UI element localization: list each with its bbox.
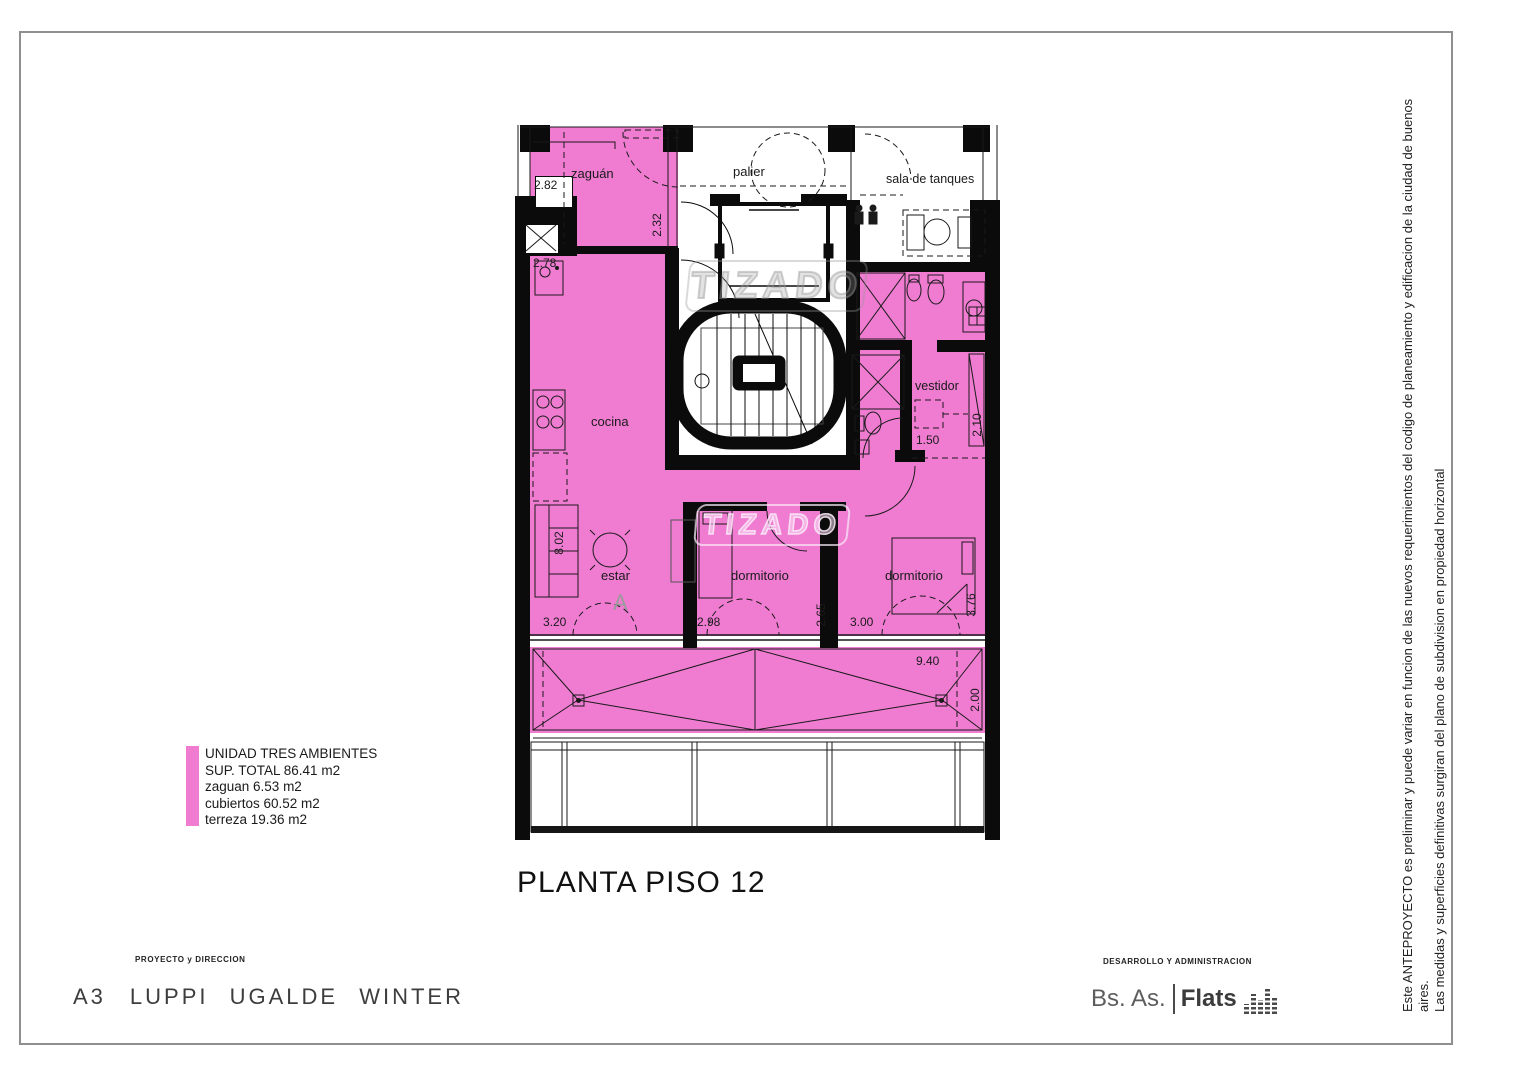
dim-label: 2.65 — [814, 600, 828, 630]
architects-prefix: A3 — [73, 984, 106, 1009]
section-marker: A — [613, 590, 628, 616]
room-label-zaguan: zaguán — [571, 166, 614, 181]
development-admin-heading: DESARROLLO Y ADMINISTRACION — [1103, 957, 1252, 966]
railing — [531, 742, 984, 833]
legend-line: cubiertos 60.52 m2 — [205, 796, 377, 813]
legend-line: terreza 19.36 m2 — [205, 812, 377, 829]
dim-label: 1.50 — [916, 433, 939, 447]
equalizer-bars-icon — [1244, 984, 1277, 1014]
cabinet — [671, 520, 695, 582]
watermark: TIZADO — [693, 504, 851, 546]
round-table — [593, 533, 627, 567]
dim-label: 3.20 — [543, 615, 566, 629]
brand-flats: Flats — [1181, 984, 1237, 1014]
disclaimer-line-1: Este ANTEPROYECTO es preliminar y puede … — [1400, 87, 1432, 1012]
plan-linework — [505, 118, 1005, 845]
dim-label: 3.76 — [964, 590, 978, 620]
dim-label: 2.98 — [697, 615, 720, 629]
stair-core — [677, 202, 840, 444]
room-label-cocina: cocina — [591, 414, 629, 429]
brand-logo: Bs. As. Flats — [1091, 982, 1277, 1014]
windows — [530, 635, 985, 640]
dim-label: 3.00 — [850, 615, 873, 629]
dim-label: 2.82 — [534, 178, 557, 192]
legend: UNIDAD TRES AMBIENTES SUP. TOTAL 86.41 m… — [186, 746, 377, 829]
disclaimer-line-2: Las medidas y superficies definitivas su… — [1432, 87, 1448, 1012]
kitchen-counter — [533, 453, 567, 501]
page-title: PLANTA PISO 12 — [517, 866, 766, 900]
legend-line: SUP. TOTAL 86.41 m2 — [205, 763, 377, 780]
floor-plan: TIZADO TIZADO zaguán palier sala de tanq… — [505, 118, 1005, 845]
dim-label: 2.00 — [968, 685, 982, 715]
room-label-estar: estar — [601, 568, 630, 583]
legend-color-swatch — [186, 746, 199, 826]
legend-line: zaguan 6.53 m2 — [205, 779, 377, 796]
brand-divider — [1173, 984, 1175, 1014]
door-swing-arc — [623, 132, 678, 187]
dim-label: 2.10 — [970, 410, 984, 440]
tank-room-fixtures — [855, 205, 971, 250]
bathroom-fixtures — [852, 273, 985, 458]
architects-name: A3LUPPI UGALDE WINTER — [73, 984, 464, 1010]
room-label-dormitorio-2: dormitorio — [885, 568, 943, 583]
terrace-slopes — [533, 649, 982, 738]
dim-label: 9.40 — [916, 654, 939, 668]
thin-walls — [518, 125, 997, 251]
room-label-tanques: sala de tanques — [886, 172, 974, 186]
door-leaf — [625, 130, 678, 138]
dim-label: 8.02 — [552, 528, 566, 558]
architects-names: LUPPI UGALDE WINTER — [130, 984, 464, 1009]
dim-label: 2.78 — [533, 256, 556, 270]
project-direction-heading: PROYECTO y DIRECCION — [135, 955, 246, 964]
dim-label: 2.32 — [650, 210, 664, 240]
room-label-dormitorio-1: dormitorio — [731, 568, 789, 583]
disclaimer-text: Este ANTEPROYECTO es preliminar y puede … — [1400, 87, 1448, 1012]
room-label-palier: palier — [733, 164, 765, 179]
room-label-vestidor: vestidor — [915, 379, 959, 393]
brand-bsas: Bs. As. — [1091, 984, 1166, 1014]
watermark: TIZADO — [684, 260, 868, 312]
legend-line: UNIDAD TRES AMBIENTES — [205, 746, 377, 763]
closet-outline — [915, 400, 943, 428]
